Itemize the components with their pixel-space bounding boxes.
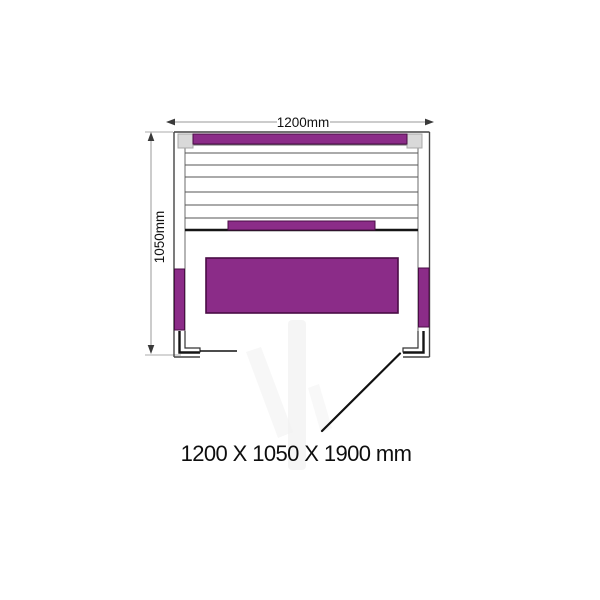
bench-slats (185, 153, 418, 218)
width-dimension: 1200mm (166, 115, 434, 130)
right-door-jamb (403, 331, 424, 353)
back-heater-panel (193, 134, 407, 144)
dimension-arrow-up (148, 132, 155, 141)
left-door-jamb (180, 331, 201, 353)
dimension-arrow-down (148, 345, 155, 354)
dimension-arrow-left (166, 119, 175, 126)
dimension-arrow-right (425, 119, 434, 126)
corner-post-left (178, 134, 193, 148)
overall-dimensions-label: 1200 X 1050 X 1900 mm (181, 441, 412, 466)
width-dimension-label: 1200mm (277, 115, 330, 130)
bench-seat-panel (206, 258, 398, 313)
corner-post-right (407, 134, 422, 148)
left-side-heater (175, 269, 185, 330)
bench-front-heater-panel (228, 221, 375, 230)
sauna-plan-image: 1200mm 1050mm (0, 0, 600, 600)
depth-dimension-label: 1050mm (152, 211, 167, 264)
right-side-heater (419, 268, 430, 327)
door-swing-line (322, 354, 400, 432)
sauna-floor-plan-diagram: 1200mm 1050mm (0, 0, 600, 600)
